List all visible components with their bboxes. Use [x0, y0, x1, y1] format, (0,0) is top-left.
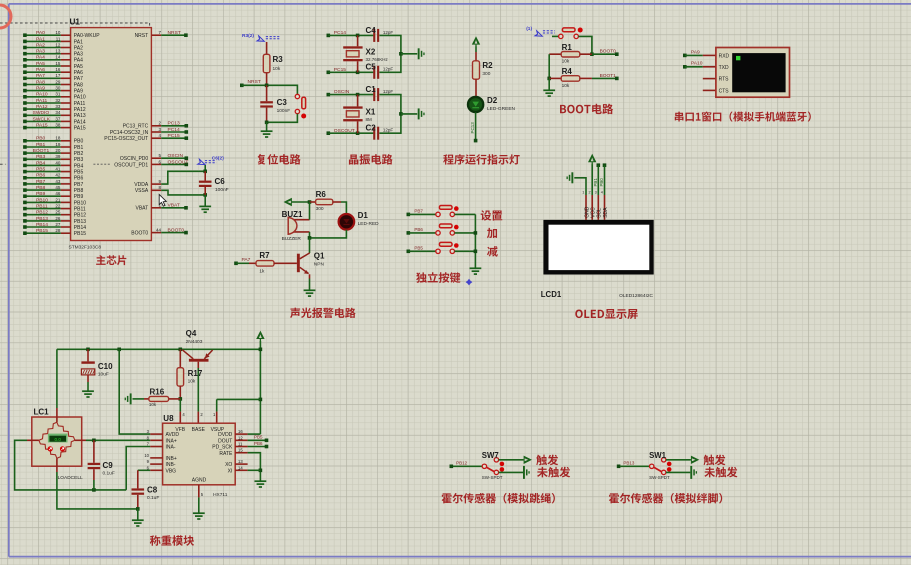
svg-text:10k: 10k: [562, 83, 570, 89]
svg-text:PB1: PB1: [36, 142, 46, 148]
svg-text:PA12: PA12: [36, 104, 48, 110]
svg-text:37: 37: [55, 116, 61, 121]
svg-text:PA11: PA11: [74, 101, 86, 107]
svg-text:C8: C8: [147, 485, 158, 494]
svg-text:DVDD: DVDD: [218, 432, 233, 438]
svg-text:PB2: PB2: [74, 151, 84, 157]
svg-text:DOUT: DOUT: [218, 438, 232, 444]
svg-text:PB6: PB6: [414, 227, 423, 232]
svg-text:U8: U8: [163, 414, 174, 423]
svg-text:0.1uF: 0.1uF: [147, 495, 159, 501]
svg-text:HX711: HX711: [213, 492, 228, 498]
svg-text:11: 11: [56, 36, 61, 41]
svg-text:PB5: PB5: [36, 167, 46, 173]
svg-text:X2: X2: [366, 48, 376, 57]
svg-text:PB13: PB13: [623, 461, 635, 466]
svg-text:PA1: PA1: [36, 36, 45, 42]
svg-text:45: 45: [55, 185, 61, 190]
svg-text:PB7: PB7: [414, 208, 423, 213]
svg-text:SW1: SW1: [649, 451, 667, 460]
svg-text:LED-GREEN: LED-GREEN: [487, 106, 516, 112]
svg-text:PB6: PB6: [36, 173, 46, 179]
svg-text:R16: R16: [150, 388, 165, 397]
svg-text:PA3: PA3: [74, 52, 83, 58]
svg-text:PB3: PB3: [36, 154, 46, 160]
svg-text:OSCIN: OSCIN: [168, 153, 184, 159]
svg-text:2: 2: [588, 191, 590, 195]
svg-text:RXD: RXD: [719, 53, 730, 59]
svg-text:28: 28: [55, 228, 61, 233]
svg-text:18: 18: [55, 136, 61, 141]
svg-text:PA15: PA15: [36, 123, 48, 129]
svg-text:26: 26: [55, 216, 61, 221]
svg-text:41: 41: [55, 167, 61, 172]
svg-text:1: 1: [582, 191, 584, 195]
svg-text:BUZZER: BUZZER: [282, 236, 302, 242]
svg-text:PA10: PA10: [691, 61, 703, 67]
svg-text:PB7: PB7: [36, 179, 46, 185]
svg-text:39: 39: [55, 154, 61, 159]
svg-text:INB+: INB+: [166, 456, 177, 462]
svg-text:PB3: PB3: [74, 157, 84, 163]
svg-text:PB1: PB1: [593, 178, 598, 187]
svg-text:C3: C3: [277, 98, 288, 107]
svg-text:BASE: BASE: [192, 427, 206, 433]
svg-text:VBAT: VBAT: [135, 206, 148, 212]
svg-text:RTS: RTS: [719, 77, 730, 83]
svg-text:43: 43: [55, 179, 61, 184]
svg-text:PB0: PB0: [599, 178, 604, 187]
svg-text:PA10: PA10: [36, 92, 48, 98]
svg-text:PA0: PA0: [36, 30, 45, 36]
svg-text:BOOT0: BOOT0: [168, 228, 185, 234]
svg-text:PA5: PA5: [36, 61, 45, 67]
svg-text:RATE: RATE: [219, 451, 233, 457]
svg-text:R7: R7: [259, 251, 270, 260]
svg-text:32.768KHz: 32.768KHz: [366, 57, 389, 62]
svg-text:CTS: CTS: [719, 88, 730, 94]
svg-text:31: 31: [55, 92, 61, 97]
svg-text:R4: R4: [562, 67, 573, 76]
svg-text:38: 38: [55, 123, 61, 128]
svg-text:PB6: PB6: [254, 441, 263, 446]
svg-text:300: 300: [482, 71, 490, 77]
svg-text:INA-: INA-: [166, 445, 176, 451]
svg-text:PB13: PB13: [74, 219, 86, 225]
svg-text:PC13: PC13: [168, 121, 181, 127]
svg-text:PA10: PA10: [74, 95, 86, 101]
svg-text:PA7: PA7: [74, 76, 83, 82]
svg-text:XI: XI: [228, 468, 233, 474]
svg-text:PB15: PB15: [74, 231, 86, 237]
svg-text:BOOT1: BOOT1: [600, 73, 617, 79]
svg-text:BOOT0: BOOT0: [600, 49, 617, 55]
svg-text:C1: C1: [366, 85, 377, 94]
svg-text:PA15: PA15: [74, 126, 86, 132]
svg-text:PB4: PB4: [74, 163, 84, 169]
svg-text:PB1: PB1: [74, 145, 84, 151]
svg-text:PA3: PA3: [36, 49, 45, 55]
svg-text:12pF: 12pF: [383, 30, 394, 35]
svg-text:PC13_RTC: PC13_RTC: [123, 124, 149, 130]
svg-text:PB10: PB10: [74, 200, 86, 206]
svg-text:PB15: PB15: [36, 228, 48, 234]
svg-text:GND: GND: [584, 206, 590, 218]
svg-text:OLED12864I2C: OLED12864I2C: [619, 293, 653, 299]
svg-text:BOOT0: BOOT0: [131, 231, 148, 237]
svg-text:C9: C9: [103, 461, 114, 470]
svg-text:TXD: TXD: [719, 65, 729, 71]
svg-text:12: 12: [238, 435, 243, 440]
svg-text:25: 25: [55, 210, 61, 215]
svg-text:PA9: PA9: [74, 89, 83, 95]
svg-text:LOADCELL: LOADCELL: [58, 475, 83, 481]
svg-text:10k: 10k: [188, 379, 196, 385]
svg-text:X1: X1: [366, 108, 376, 117]
svg-text:PA13: PA13: [74, 113, 86, 119]
svg-text:0.1uF: 0.1uF: [103, 471, 115, 477]
svg-text:PB12: PB12: [36, 210, 48, 216]
svg-text:INA+: INA+: [166, 438, 177, 444]
svg-text:PB14: PB14: [74, 225, 86, 231]
svg-text:PA5: PA5: [74, 64, 83, 70]
svg-text:27: 27: [55, 222, 61, 227]
svg-text:R17: R17: [188, 369, 203, 378]
svg-text:C10: C10: [98, 362, 113, 371]
svg-text:PB14: PB14: [36, 222, 48, 228]
svg-text:PB5: PB5: [254, 435, 263, 440]
svg-text:PD_SCK: PD_SCK: [212, 445, 233, 451]
svg-text:OSCOUT_PD1: OSCOUT_PD1: [114, 162, 148, 168]
svg-text:Q4: Q4: [186, 329, 197, 338]
svg-text:C2: C2: [366, 124, 377, 133]
svg-text:NRST: NRST: [168, 30, 181, 36]
svg-text:33: 33: [55, 104, 61, 109]
svg-text:SCL: SCL: [597, 208, 603, 218]
svg-text:10k: 10k: [562, 59, 570, 65]
svg-text:21: 21: [55, 197, 61, 202]
svg-text:PA8: PA8: [74, 82, 83, 88]
svg-text:30: 30: [55, 86, 61, 91]
svg-text:PB5: PB5: [74, 170, 84, 176]
svg-text:SW7: SW7: [482, 451, 499, 460]
svg-text:PB13: PB13: [36, 216, 48, 222]
svg-text:NPN: NPN: [314, 261, 325, 267]
svg-text:VBAT: VBAT: [168, 203, 180, 209]
svg-text:PA8: PA8: [36, 79, 45, 85]
svg-text:VSSA: VSSA: [135, 188, 149, 194]
svg-text:NRST: NRST: [248, 79, 261, 85]
svg-text:13: 13: [238, 459, 243, 464]
svg-text:100nF: 100nF: [215, 187, 229, 193]
svg-text:R2: R2: [482, 61, 493, 70]
svg-text:VCC: VCC: [591, 207, 597, 218]
svg-text:11: 11: [238, 442, 243, 447]
svg-text:BUZ1: BUZ1: [282, 210, 303, 219]
svg-text:U1: U1: [70, 18, 81, 27]
svg-text:D1: D1: [358, 211, 369, 220]
svg-text:PB11: PB11: [74, 207, 86, 213]
svg-text:15: 15: [55, 61, 61, 66]
svg-text:PB8: PB8: [36, 185, 46, 191]
svg-text:34: 34: [55, 110, 61, 115]
svg-text:SW-SPDT: SW-SPDT: [482, 475, 503, 480]
svg-text:12pF: 12pF: [383, 89, 394, 94]
svg-text:VDDA: VDDA: [134, 182, 149, 188]
svg-text:INB-: INB-: [166, 462, 176, 468]
svg-text:PB9: PB9: [74, 194, 84, 200]
svg-text:10k: 10k: [273, 66, 281, 72]
svg-text:PA4: PA4: [74, 58, 83, 64]
svg-text:PA7: PA7: [242, 257, 251, 263]
svg-text:16: 16: [238, 429, 243, 434]
svg-text:29: 29: [55, 79, 61, 84]
svg-text:PC14-OSC32_IN: PC14-OSC32_IN: [110, 130, 149, 136]
svg-text:300: 300: [316, 206, 324, 212]
svg-text:PC15-OSC32_OUT: PC15-OSC32_OUT: [104, 136, 148, 142]
svg-text:PA4: PA4: [36, 55, 45, 61]
svg-text:10k: 10k: [149, 402, 157, 407]
svg-text:PB0: PB0: [36, 136, 46, 142]
svg-text:14: 14: [238, 465, 243, 470]
svg-text:PA9: PA9: [36, 86, 45, 92]
svg-text:10uF: 10uF: [98, 372, 109, 378]
svg-text:15: 15: [238, 448, 243, 453]
svg-text:16: 16: [55, 67, 61, 72]
svg-text:46: 46: [55, 191, 61, 196]
svg-text:LCD1: LCD1: [541, 290, 562, 299]
svg-text:OSCOUT: OSCOUT: [168, 159, 189, 165]
svg-text:19: 19: [55, 142, 61, 147]
svg-text:0.0: 0.0: [55, 437, 62, 442]
svg-text:PA9: PA9: [691, 49, 700, 55]
svg-text:C4: C4: [366, 26, 377, 35]
svg-text:42: 42: [55, 173, 61, 178]
svg-text:PB7: PB7: [74, 182, 84, 188]
svg-text:NRST: NRST: [135, 33, 149, 39]
svg-text:LED-RED: LED-RED: [358, 221, 380, 227]
svg-text:44: 44: [156, 228, 162, 233]
svg-text:PA6: PA6: [36, 67, 45, 73]
svg-text:40: 40: [55, 160, 61, 165]
svg-text:STM32F103C8: STM32F103C8: [69, 245, 102, 251]
svg-text:PB10: PB10: [36, 197, 48, 203]
svg-text:PB0: PB0: [74, 139, 84, 145]
svg-text:PB11: PB11: [36, 204, 48, 210]
svg-text:PA2: PA2: [36, 42, 45, 48]
svg-text:12pF: 12pF: [383, 67, 394, 72]
svg-text:PB8: PB8: [74, 188, 84, 194]
svg-text:R1: R1: [562, 43, 573, 52]
svg-text:Q1: Q1: [314, 251, 325, 260]
svg-text:2N4403: 2N4403: [186, 339, 203, 345]
svg-text:(1): (1): [526, 26, 532, 32]
svg-text:AGND: AGND: [192, 477, 207, 483]
svg-text:LC1: LC1: [34, 408, 50, 417]
svg-text:AVDD: AVDD: [166, 432, 180, 438]
svg-text:PB5: PB5: [414, 245, 423, 250]
svg-text:VBG: VBG: [166, 468, 177, 474]
svg-text:R6: R6: [316, 190, 327, 199]
svg-text:PA6: PA6: [74, 70, 83, 76]
svg-text:4: 4: [601, 191, 603, 195]
svg-text:XO: XO: [225, 462, 232, 468]
svg-text:R3: R3: [273, 55, 284, 64]
svg-text:SWCLK: SWCLK: [33, 116, 51, 122]
svg-text:20: 20: [55, 148, 61, 153]
svg-text:PA11: PA11: [36, 98, 48, 104]
svg-text:OSCIN_PD0: OSCIN_PD0: [120, 156, 149, 162]
svg-text:R3(2): R3(2): [242, 33, 254, 39]
svg-text:BOOT1: BOOT1: [33, 148, 50, 154]
svg-text:22: 22: [55, 204, 61, 209]
svg-text:8M: 8M: [366, 117, 373, 122]
svg-text:PA0-WKUP: PA0-WKUP: [74, 33, 100, 39]
svg-text:PB12: PB12: [74, 213, 86, 219]
svg-text:PB12: PB12: [456, 461, 468, 466]
svg-text:10: 10: [55, 30, 61, 35]
svg-text:PA1: PA1: [74, 39, 83, 45]
svg-text:PA12: PA12: [74, 107, 86, 113]
svg-text:PA14: PA14: [74, 119, 86, 125]
svg-text:3: 3: [595, 191, 597, 195]
svg-text:17: 17: [55, 73, 61, 78]
svg-text:SDA: SDA: [603, 207, 609, 218]
svg-text:PB9: PB9: [36, 191, 46, 197]
svg-text:1k: 1k: [259, 268, 265, 274]
svg-text:14: 14: [55, 55, 61, 60]
svg-text:SWDIO: SWDIO: [33, 110, 50, 116]
svg-text:12: 12: [55, 42, 61, 47]
svg-text:32: 32: [55, 98, 61, 103]
svg-text:C6: C6: [215, 177, 226, 186]
svg-text:D2: D2: [487, 96, 498, 105]
svg-text:10: 10: [144, 453, 149, 458]
svg-text:13: 13: [55, 49, 61, 54]
svg-text:PC14: PC14: [168, 127, 181, 133]
svg-text:PA2: PA2: [74, 45, 83, 51]
svg-text:C5: C5: [366, 63, 377, 72]
svg-text:PC15: PC15: [168, 133, 181, 139]
svg-text:PC13: PC13: [470, 122, 475, 134]
svg-text:PA7: PA7: [36, 73, 45, 79]
svg-text:PB6: PB6: [74, 176, 84, 182]
svg-text:12pF: 12pF: [383, 128, 394, 133]
svg-text:PB4: PB4: [36, 160, 46, 166]
svg-text:SW-SPDT: SW-SPDT: [649, 475, 670, 480]
svg-text:100nF: 100nF: [277, 108, 291, 114]
